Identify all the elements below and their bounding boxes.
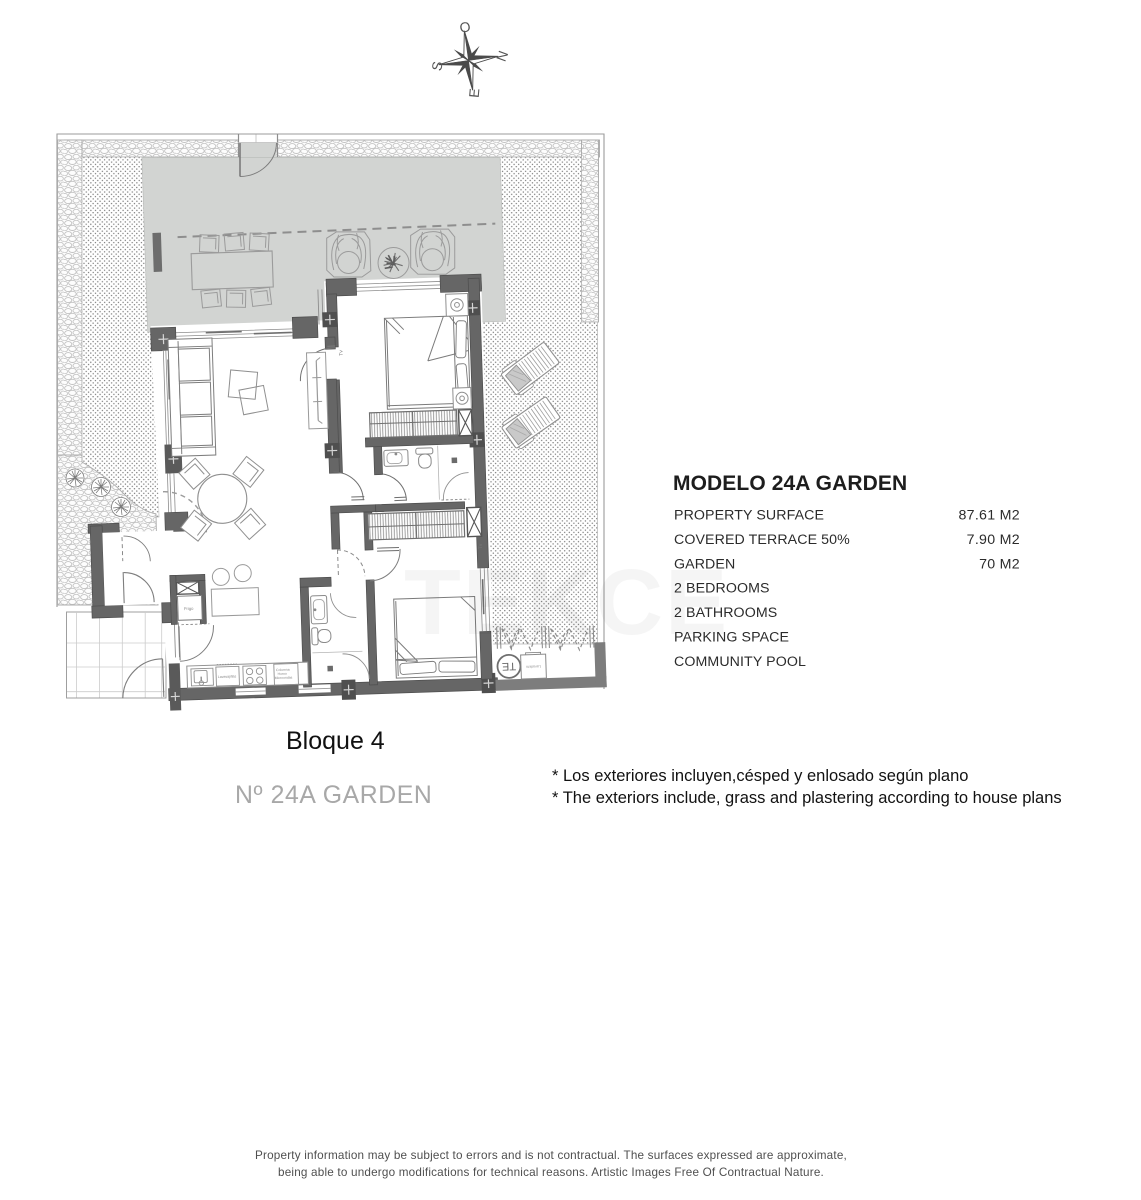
svg-text:E: E (466, 88, 483, 99)
svg-text:Lavavajillas: Lavavajillas (218, 674, 237, 679)
svg-text:being able to undergo modifica: being able to undergo modifications for … (278, 1166, 824, 1179)
svg-text:GARDEN: GARDEN (674, 557, 735, 573)
svg-text:* The exteriors include, grass: * The exteriors include, grass and plast… (552, 789, 1062, 807)
svg-text:COMMUNITY POOL: COMMUNITY POOL (674, 654, 806, 670)
svg-text:Tv: Tv (338, 350, 344, 356)
svg-text:PROPERTY SURFACE: PROPERTY SURFACE (674, 508, 824, 524)
svg-text:PARKING SPACE: PARKING SPACE (674, 630, 789, 646)
svg-text:Microondas: Microondas (275, 676, 293, 681)
svg-text:TE: TE (502, 660, 516, 672)
svg-text:Property information may be su: Property information may be subject to e… (255, 1149, 847, 1162)
svg-text:Nº 24A GARDEN: Nº 24A GARDEN (235, 782, 432, 809)
svg-text:70 M2: 70 M2 (979, 557, 1020, 573)
svg-text:7.90 M2: 7.90 M2 (967, 532, 1020, 548)
svg-text:Bloque 4: Bloque 4 (286, 727, 385, 755)
svg-text:Lavadero: Lavadero (526, 664, 541, 668)
svg-text:Tv: Tv (478, 543, 484, 549)
svg-text:87.61 M2: 87.61 M2 (958, 508, 1020, 524)
svg-text:2 BEDROOMS: 2 BEDROOMS (674, 581, 770, 597)
svg-text:2 BATHROOMS: 2 BATHROOMS (674, 605, 777, 621)
svg-text:MODELO 24A GARDEN: MODELO 24A GARDEN (673, 472, 907, 495)
svg-text:* Los exteriores incluyen,césp: * Los exteriores incluyen,césped y enlos… (552, 767, 968, 785)
svg-text:Frigo: Frigo (184, 606, 194, 611)
svg-text:COVERED TERRACE 50%: COVERED TERRACE 50% (674, 532, 850, 548)
